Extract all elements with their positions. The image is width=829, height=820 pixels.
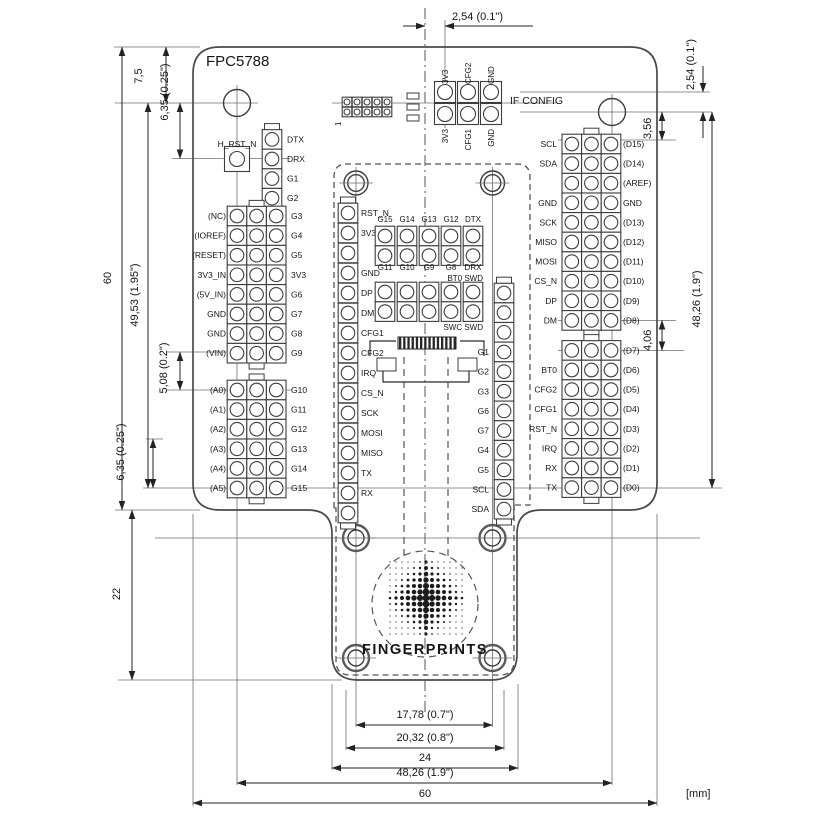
sensor-dot — [423, 577, 428, 582]
sensor-dot — [455, 591, 457, 593]
left-power-header: (NC)G3(IOREF)G4(RESET)G53V3_IN3V3(5V_IN)… — [192, 206, 306, 363]
pin-label: G1 — [287, 174, 299, 184]
pin-hole — [230, 229, 244, 243]
sensor-dot — [436, 590, 441, 595]
pin-hole — [422, 305, 436, 319]
pin-hole — [230, 288, 244, 302]
sensor-dot — [406, 584, 409, 587]
pin-label: SDA — [472, 504, 490, 514]
fingerprint-sensor-dot-matrix — [389, 560, 464, 635]
sensor-dot — [419, 627, 421, 629]
pin-label: G9 — [291, 348, 303, 358]
pin-hole — [269, 229, 283, 243]
pin-label: (5V_IN) — [197, 289, 226, 299]
pin-hole — [341, 406, 355, 420]
sensor-dot — [389, 609, 390, 610]
pin-label: MISO — [361, 448, 383, 458]
left-analog-header: (A0)G10(A1)G11(A2)G12(A3)G13(A4)G14(A5)G… — [210, 380, 307, 498]
sensor-dot — [389, 579, 390, 580]
pin-label: 3V3 — [291, 270, 306, 280]
pin-hole — [341, 386, 355, 400]
pin-hole — [250, 248, 264, 262]
gpio-top-label: G14 — [399, 215, 415, 224]
pin-hole — [269, 268, 283, 282]
pin-hole — [250, 346, 264, 360]
pin-hole — [230, 152, 245, 167]
header-key-tab — [249, 200, 264, 206]
pin-label: (D5) — [623, 385, 640, 395]
pin-label: SCL — [540, 139, 557, 149]
sensor-dot — [417, 595, 423, 601]
sensor-dot — [424, 566, 428, 570]
pin-label: SDA — [540, 159, 558, 169]
pin-hole — [250, 307, 264, 321]
pin-hole — [269, 209, 283, 223]
pin-hole — [585, 402, 599, 416]
sensor-dot — [389, 573, 390, 574]
pin-hole — [384, 99, 390, 105]
sensor-dot — [429, 601, 434, 606]
sensor-dot — [407, 633, 408, 634]
sensor-dot — [442, 608, 445, 611]
pin-hole — [422, 285, 436, 299]
pin-hole — [269, 442, 283, 456]
pin-label: (D9) — [623, 296, 640, 306]
fpc-connector — [370, 337, 484, 558]
pin-label: (D11) — [623, 257, 644, 267]
sensor-dot — [443, 561, 444, 562]
sensor-dot — [443, 573, 445, 575]
dim-left-lower-offset: 6,35 (0.25") — [115, 423, 127, 480]
pin-hole — [374, 109, 380, 115]
pin-hole — [585, 235, 599, 249]
sensor-dot — [449, 615, 451, 617]
dim-tail-height: 22 — [111, 588, 123, 600]
pin-label: CFG1 — [534, 404, 557, 414]
pin-hole — [565, 481, 579, 495]
pin-hole — [585, 137, 599, 151]
sensor-dot — [436, 608, 440, 612]
sensor-dot — [461, 585, 462, 586]
header-key-tab — [584, 497, 599, 503]
pin-label: (A3) — [210, 444, 226, 454]
sensor-dot — [455, 579, 456, 580]
pin-hole — [269, 422, 283, 436]
sensor-dot — [401, 615, 403, 617]
sensor-dot — [449, 633, 450, 634]
header-key-tab — [249, 374, 264, 380]
pin-hole — [269, 288, 283, 302]
pin-label: (D15) — [623, 139, 644, 149]
sensor-dot — [389, 585, 390, 586]
if-config-header: 3V33V3CFG2CFG1GNDGND — [435, 62, 502, 150]
sensor-dot — [448, 596, 452, 600]
dim-left-gap: 5,08 (0.2") — [158, 343, 170, 394]
pin-label: BT0 — [541, 365, 557, 375]
sensor-dot — [455, 573, 456, 574]
pin-hole — [497, 443, 511, 457]
pin-label: (D12) — [623, 237, 644, 247]
sensor-dot — [436, 614, 439, 617]
pin-hole — [341, 246, 355, 260]
pin-hole — [565, 363, 579, 377]
gpio-bottom-label: G10 — [399, 263, 415, 272]
sensor-dot — [430, 608, 435, 613]
pin-label: G5 — [291, 250, 303, 260]
pin-label: G7 — [478, 426, 490, 436]
pin-hole — [565, 422, 579, 436]
pin-hole — [585, 363, 599, 377]
header-key-tab — [497, 277, 512, 283]
pin-hole — [565, 274, 579, 288]
pin-hole — [604, 481, 618, 495]
sensor-dot — [431, 627, 433, 629]
sensor-dot — [395, 609, 397, 611]
sensor-dot — [430, 578, 434, 582]
sensor-dot — [406, 596, 411, 601]
pin-hole — [497, 463, 511, 477]
pin-hole — [250, 383, 264, 397]
sensor-dot — [406, 608, 409, 611]
pin-hole — [354, 99, 360, 105]
pin-hole — [585, 383, 599, 397]
pin-label: RX — [545, 463, 557, 473]
sensor-dot — [401, 561, 402, 562]
sensor-dot — [423, 595, 430, 602]
sensor-dot — [401, 567, 402, 568]
pin-label: DM — [361, 308, 374, 318]
pin-hole — [378, 229, 392, 243]
sensor-dot — [419, 561, 421, 563]
sensor-dot — [449, 621, 450, 622]
pin-label: SCK — [540, 217, 558, 227]
sensor-dot — [389, 567, 390, 568]
pin-hole — [341, 446, 355, 460]
pin-hole — [250, 229, 264, 243]
sensor-dot — [431, 633, 433, 635]
pin-hole — [585, 314, 599, 328]
sensor-dot — [389, 621, 390, 622]
pin-label: (AREF) — [623, 178, 652, 188]
sensor-dot — [455, 567, 456, 568]
pin-hole — [604, 402, 618, 416]
pin-hole — [230, 383, 244, 397]
pin-hole — [230, 327, 244, 341]
pin-label: 3V3 — [361, 228, 376, 238]
sensor-dot — [389, 561, 390, 562]
sensor-dot — [443, 621, 445, 623]
sensor-dot — [389, 627, 390, 628]
swd-top-label: BT0 SWD — [447, 274, 483, 283]
sensor-dot — [401, 579, 403, 581]
dim-left-height: 60 — [102, 272, 114, 284]
gpio-bottom-label: DRX — [465, 263, 483, 272]
pin-label: DTX — [287, 134, 304, 144]
dim-right-pitch: 2,54 (0.1") — [685, 39, 697, 90]
pin-hole — [341, 346, 355, 360]
sensor-dot — [443, 627, 444, 628]
sensor-dot — [455, 633, 456, 634]
pin-hole — [250, 403, 264, 417]
right-upper-header: SCL(D15)SDA(D14)(AREF)GNDGNDSCK(D13)MISO… — [534, 134, 651, 330]
pin-hole — [565, 294, 579, 308]
pin-hole — [585, 481, 599, 495]
sensor-dot — [401, 621, 402, 622]
pin-hole — [250, 288, 264, 302]
pin-hole — [341, 226, 355, 240]
sensor-dot — [442, 596, 447, 601]
sensor-dot — [418, 620, 421, 623]
pin-hole — [585, 196, 599, 210]
pin-label: G2 — [287, 193, 299, 203]
sensor-dot — [395, 603, 397, 605]
gpio-bottom-label: G11 — [378, 263, 393, 272]
h-rst-label: H_RST_N — [218, 139, 257, 149]
pin-hole — [422, 229, 436, 243]
pin-hole — [422, 249, 436, 263]
pin-hole — [461, 107, 476, 122]
pin-hole — [341, 266, 355, 280]
sensor-dot — [395, 633, 396, 634]
pin-hole — [250, 327, 264, 341]
pin-hole — [565, 216, 579, 230]
pin-label: SCK — [361, 408, 379, 418]
pin-label: MOSI — [361, 428, 383, 438]
pin-label: GND — [623, 198, 642, 208]
pin-hole — [344, 99, 350, 105]
pin-hole — [250, 209, 264, 223]
sensor-dot — [401, 633, 402, 634]
sensor-dot — [437, 627, 439, 629]
sensor-dot — [431, 561, 433, 563]
sensor-dot — [401, 609, 404, 612]
pin-label: (NC) — [208, 211, 226, 221]
pin-label: CFG2 — [534, 385, 557, 395]
sensor-dot — [417, 589, 422, 594]
h-rst-pin: H_RST_N — [218, 139, 257, 172]
sensor-dot — [455, 603, 457, 605]
pin-hole — [250, 268, 264, 282]
gpio-top-label: G12 — [443, 215, 459, 224]
sensor-dot — [429, 589, 434, 594]
sensor-dot — [389, 597, 392, 600]
pin-hole — [497, 404, 511, 418]
header-key-tab — [249, 363, 264, 369]
pin-label: DRX — [287, 154, 305, 164]
pin-hole — [604, 461, 618, 475]
pin-hole — [341, 286, 355, 300]
pin-label: G1 — [478, 347, 490, 357]
sensor-dot — [400, 602, 403, 605]
dim-sensor-holes: 17,78 (0.7") — [396, 709, 453, 721]
sensor-dot — [401, 627, 402, 628]
connector-contact-strip — [398, 337, 456, 349]
sensor-dot — [455, 627, 456, 628]
sensor-dot — [423, 601, 430, 608]
pin-label: G4 — [291, 231, 303, 241]
sensor-dot — [395, 585, 397, 587]
module-swd-header: BT0 SWDSWC SWD — [375, 274, 483, 332]
sensor-dot — [430, 614, 434, 618]
gpio-bottom-label: G8 — [446, 263, 457, 272]
pin-hole — [585, 344, 599, 358]
sensor-dot — [442, 602, 446, 606]
sensor-dot — [412, 590, 417, 595]
pin-hole — [497, 306, 511, 320]
sensor-dot — [395, 567, 396, 568]
pin-label: RX — [361, 488, 373, 498]
pin-label: (D8) — [623, 315, 640, 325]
pin-hole — [585, 461, 599, 475]
pin-label: G8 — [291, 329, 303, 339]
pin-hole — [230, 209, 244, 223]
pin-hole — [344, 109, 350, 115]
pin-hole — [565, 461, 579, 475]
pin-label: G11 — [291, 405, 307, 415]
sensor-dot — [395, 561, 396, 562]
sensor-dot — [424, 572, 429, 577]
sensor-dot — [430, 572, 433, 575]
pin-hole — [230, 403, 244, 417]
pin-label: (VIN) — [206, 348, 226, 358]
module-hole-right — [476, 171, 510, 195]
sensor-dot — [407, 615, 410, 618]
pin-hole — [604, 176, 618, 190]
sensor-dot — [418, 614, 422, 618]
gpio-bottom-label: G9 — [424, 263, 435, 272]
pin-hole — [565, 383, 579, 397]
sensor-dot — [418, 584, 423, 589]
pin-hole — [565, 157, 579, 171]
pin-label: (A2) — [210, 424, 226, 434]
sensor-dot — [461, 597, 464, 600]
sensor-dot — [395, 591, 397, 593]
aux-header: 1 — [334, 93, 419, 126]
sensor-dot — [461, 603, 463, 605]
pin-label: (D0) — [623, 483, 640, 493]
sensor-dot — [417, 601, 422, 606]
connector-pad-left — [377, 358, 396, 371]
sensor-dot — [448, 602, 451, 605]
sensor-dot — [395, 627, 396, 628]
pin-label: (A4) — [210, 463, 226, 473]
pin-hole — [269, 462, 283, 476]
pin-hole — [341, 466, 355, 480]
pin-hole — [565, 235, 579, 249]
sensor-dot — [413, 561, 414, 562]
pin-label: (RESET) — [192, 250, 226, 260]
sensor-dot — [455, 561, 456, 562]
sensor-dot — [449, 567, 450, 568]
pin-hole — [354, 109, 360, 115]
left-serial-column: DTXDRXG1G2 — [262, 130, 305, 208]
pin-hole — [374, 99, 380, 105]
pin-hole — [585, 442, 599, 456]
pin-hole — [565, 196, 579, 210]
pin-hole — [341, 506, 355, 520]
pin-hole — [444, 229, 458, 243]
sensor-dot — [436, 584, 440, 588]
pin-hole — [497, 326, 511, 340]
if-config-pin-label: 3V3 — [441, 128, 450, 143]
pin-hole — [604, 363, 618, 377]
sensor-dot — [395, 573, 396, 574]
dim-tail-width: 24 — [419, 752, 431, 764]
sensor-dot — [389, 603, 391, 605]
sensor-dot — [400, 590, 403, 593]
dim-top-pitch: 2,54 (0.1") — [452, 11, 503, 23]
pin-label: MISO — [535, 237, 557, 247]
sensor-dot — [418, 608, 423, 613]
pin-hole — [341, 326, 355, 340]
sensor-dot — [418, 578, 422, 582]
pin-hole — [497, 483, 511, 497]
pin-label: IRQ — [542, 443, 558, 453]
pin-label: G6 — [291, 289, 303, 299]
sensor-dot — [455, 585, 457, 587]
pin-hole — [269, 248, 283, 262]
dim-right-span: 48,26 (1.9") — [691, 270, 703, 327]
pin-hole — [250, 442, 264, 456]
pin-hole — [269, 383, 283, 397]
pin-hole — [497, 384, 511, 398]
sensor-dot — [407, 627, 408, 628]
pin-hole — [341, 206, 355, 220]
pin-hole — [604, 216, 618, 230]
dim-bottom-width: 60 — [419, 788, 431, 800]
sensor-dot — [424, 560, 427, 563]
pin-hole — [230, 346, 244, 360]
pin-label: G5 — [478, 465, 490, 475]
pin-label: (A5) — [210, 483, 226, 493]
pin-hole — [230, 248, 244, 262]
sensor-dot — [395, 615, 396, 616]
pin-hole — [565, 344, 579, 358]
pin-hole — [269, 346, 283, 360]
if-config-pin-label: CFG1 — [464, 128, 473, 150]
sensor-dot — [419, 633, 421, 635]
sensor-dot — [407, 567, 408, 568]
pin-hole — [604, 157, 618, 171]
sensor-dot — [412, 608, 416, 612]
sensor-dot — [437, 573, 440, 576]
sensor-dot — [437, 561, 438, 562]
pin-hole — [604, 344, 618, 358]
sensor-dot — [442, 584, 445, 587]
header-key-tab — [249, 498, 264, 504]
pin-label: G3 — [291, 211, 303, 221]
sensor-dot — [401, 585, 404, 588]
pin-hole — [585, 274, 599, 288]
sensor-dot — [423, 583, 429, 589]
pin-label: (D4) — [623, 404, 640, 414]
pin-hole — [341, 426, 355, 440]
units-note: [mm] — [686, 788, 710, 800]
pin-hole — [265, 191, 279, 205]
pin-label: (D7) — [623, 345, 640, 355]
pin-hole — [269, 307, 283, 321]
header-key-tab — [341, 523, 356, 529]
pin-label: DP — [545, 296, 557, 306]
header-key-tab — [265, 124, 280, 130]
board-title: FPC5788 — [206, 53, 269, 70]
sensor-dot — [449, 579, 451, 581]
pin-hole — [585, 294, 599, 308]
pin-hole — [585, 422, 599, 436]
fpc5788-dimension-drawing: FINGERPRINTS 2,54 (0.1") 2, — [0, 0, 829, 820]
pin-hole — [565, 314, 579, 328]
pin-hole — [497, 345, 511, 359]
